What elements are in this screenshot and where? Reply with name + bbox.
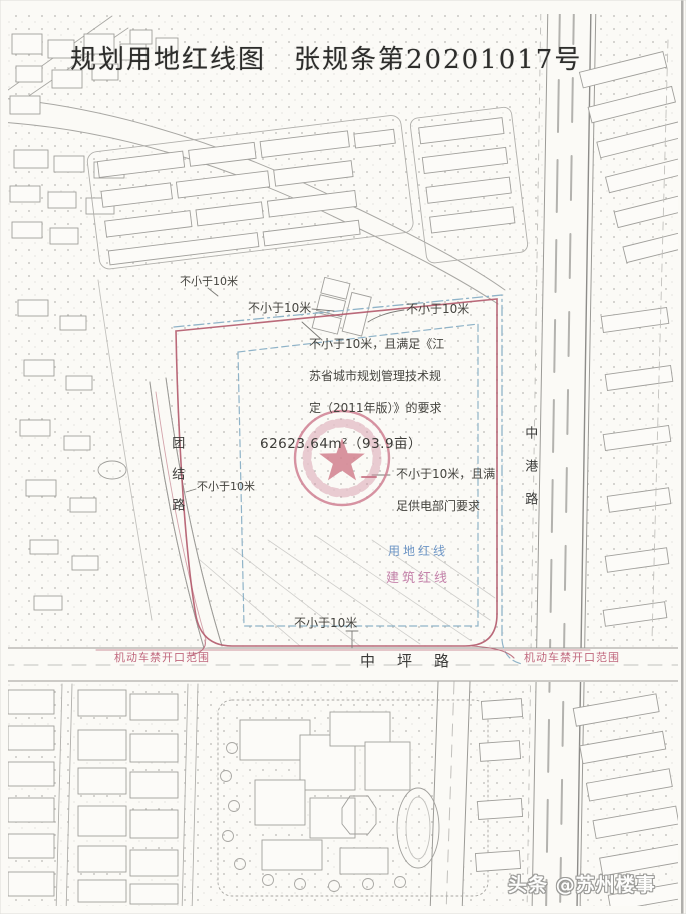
power-note: 不小于10米，且满 足供电部门要求: [396, 466, 495, 514]
page-title: 规划用地红线图 张规条第20201017号: [70, 44, 582, 77]
road-label-tuanjie: 团结路: [168, 436, 184, 529]
power-note-line1: 不小于10米，且满: [396, 467, 495, 481]
regulation-note-line1: 不小于10米，且满足《江: [309, 337, 444, 351]
setback-label-top-right: 不小于10米: [406, 302, 469, 317]
legend-land-redline: 用地红线: [388, 544, 448, 559]
regulation-note-line2: 苏省城市规划管理技术规: [309, 369, 441, 383]
parcel-area-label: 62623.64m²（93.9亩）: [260, 436, 422, 453]
official-stamp: [295, 411, 389, 505]
setback-label-bottom: 不小于10米: [294, 616, 357, 631]
no-opening-label-left: 机动车禁开口范围: [114, 651, 210, 665]
regulation-note-line3: 定（2011年版）》的要求: [309, 401, 442, 415]
setback-label-left: 不小于10米: [197, 480, 255, 494]
setback-label-top-mid: 不小于10米: [248, 301, 311, 316]
setback-label-top-left: 不小于10米: [180, 275, 238, 289]
power-note-line2: 足供电部门要求: [396, 499, 480, 513]
no-opening-label-right: 机动车禁开口范围: [524, 651, 620, 665]
road-label-zhongping: 中坪路: [360, 652, 471, 671]
map-linework: [0, 0, 686, 914]
scan-edge-right: [681, 0, 684, 914]
scanned-planning-map: 规划用地红线图 张规条第20201017号 不小于10米 不小于10米 不小于1…: [0, 0, 686, 914]
regulation-note: 不小于10米，且满足《江 苏省城市规划管理技术规 定（2011年版）》的要求: [309, 336, 444, 416]
watermark: 头条 @苏州楼事: [508, 874, 656, 898]
road-label-zhonggang: 中港路: [521, 426, 537, 525]
legend-building-redline: 建筑红线: [386, 571, 450, 587]
